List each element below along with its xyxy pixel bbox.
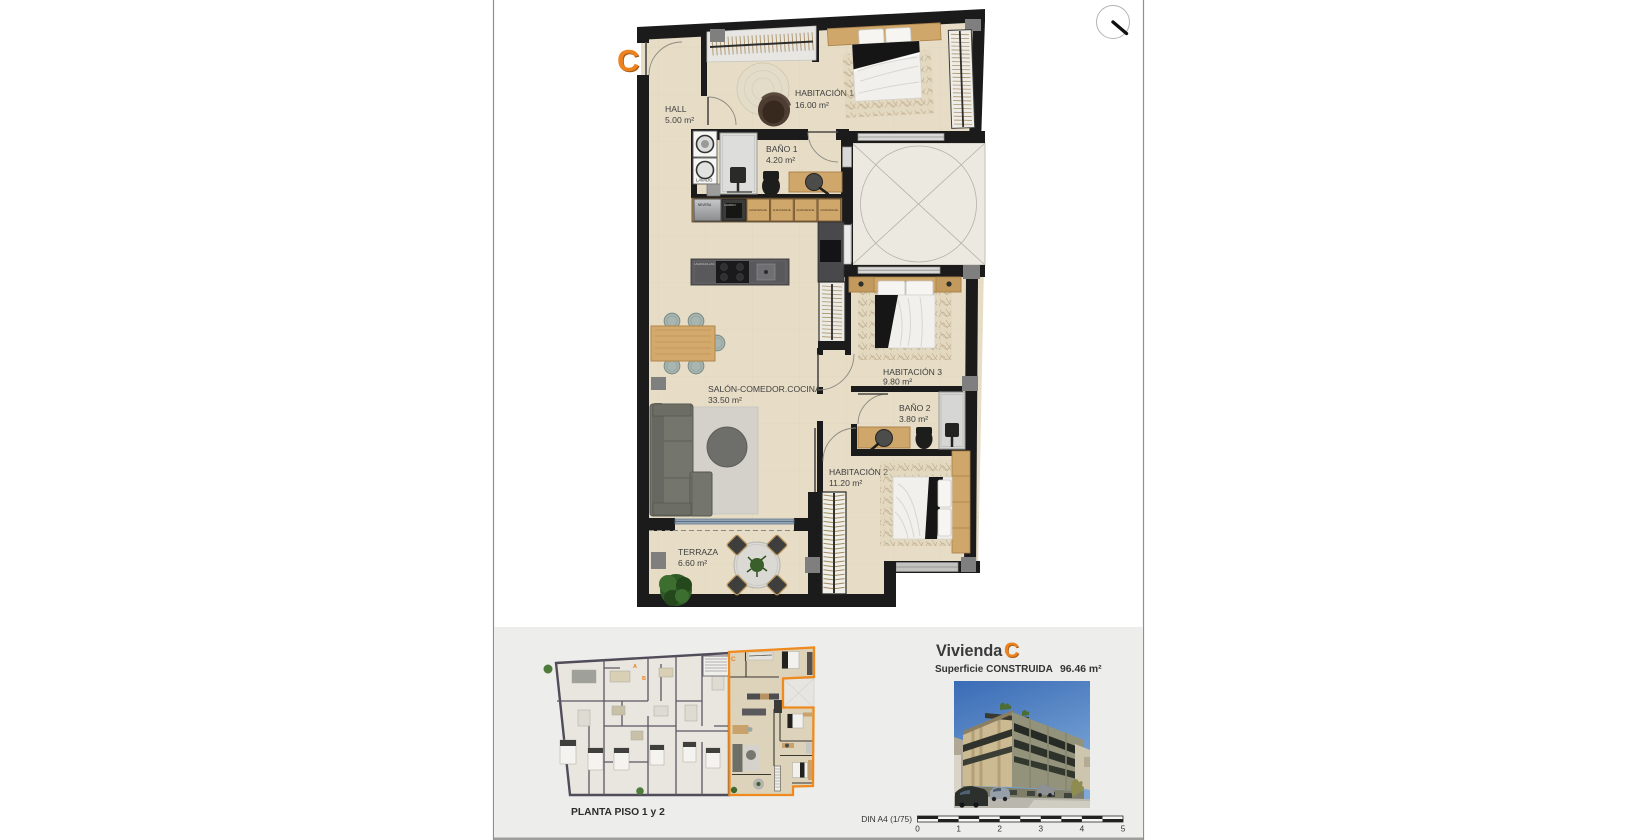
- svg-text:1: 1: [956, 825, 961, 834]
- svg-text:HABITACIÓN 2: HABITACIÓN 2: [829, 467, 888, 477]
- svg-text:A: A: [633, 664, 637, 670]
- svg-text:ALMACENAJE: ALMACENAJE: [820, 208, 838, 212]
- svg-text:5.00 m²: 5.00 m²: [665, 115, 694, 125]
- svg-text:LAVAVAJILLAS: LAVAVAJILLAS: [694, 262, 714, 266]
- svg-text:HABITACIÓN 3: HABITACIÓN 3: [883, 367, 942, 377]
- svg-text:HALL: HALL: [665, 104, 687, 114]
- svg-text:3: 3: [1039, 825, 1044, 834]
- svg-text:DIN A4 (1/75): DIN A4 (1/75): [861, 814, 912, 824]
- svg-text:Superficie CONSTRUIDA: Superficie CONSTRUIDA: [935, 664, 1053, 675]
- svg-text:SALÓN-COMEDOR.COCINA: SALÓN-COMEDOR.COCINA: [708, 384, 821, 394]
- svg-text:C: C: [617, 43, 639, 78]
- svg-text:4: 4: [1080, 825, 1085, 834]
- svg-text:LAVADO: LAVADO: [696, 178, 713, 183]
- svg-text:5: 5: [1121, 825, 1126, 834]
- svg-text:33.50 m²: 33.50 m²: [708, 395, 742, 405]
- svg-text:3.80 m²: 3.80 m²: [899, 414, 928, 424]
- svg-text:BAÑO 2: BAÑO 2: [899, 403, 931, 413]
- svg-text:ALMACENAJE: ALMACENAJE: [749, 208, 767, 212]
- svg-text:4.20 m²: 4.20 m²: [766, 155, 795, 165]
- svg-text:0: 0: [915, 825, 920, 834]
- svg-text:9.80 m²: 9.80 m²: [883, 377, 912, 387]
- svg-text:ALMACENAJE: ALMACENAJE: [796, 208, 814, 212]
- svg-text:PLANTA PISO 1 y 2: PLANTA PISO 1 y 2: [571, 807, 665, 818]
- svg-text:11.20 m²: 11.20 m²: [829, 478, 862, 488]
- svg-text:B: B: [642, 676, 646, 682]
- svg-text:2: 2: [997, 825, 1002, 834]
- svg-text:Vivienda: Vivienda: [936, 642, 1003, 660]
- svg-text:C: C: [1004, 639, 1019, 662]
- svg-text:C: C: [731, 656, 736, 663]
- svg-text:16.00 m²: 16.00 m²: [795, 100, 829, 110]
- svg-text:96.46 m²: 96.46 m²: [1060, 664, 1102, 675]
- svg-text:HORNO: HORNO: [725, 203, 737, 207]
- svg-text:TERRAZA: TERRAZA: [678, 547, 718, 557]
- svg-text:6.60 m²: 6.60 m²: [678, 558, 707, 568]
- svg-text:BAÑO 1: BAÑO 1: [766, 144, 798, 154]
- svg-text:NEVERA: NEVERA: [698, 203, 712, 207]
- svg-text:ALMACENAJE: ALMACENAJE: [773, 208, 791, 212]
